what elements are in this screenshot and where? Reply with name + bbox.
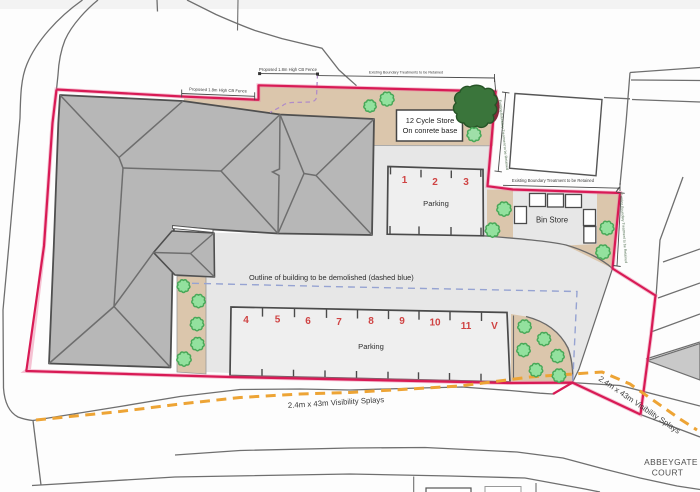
svg-text:7: 7 [336,317,342,328]
svg-text:6: 6 [305,316,311,327]
svg-text:COURT: COURT [652,468,684,478]
svg-text:5: 5 [275,315,281,326]
svg-text:ABBEYGATE: ABBEYGATE [644,457,698,467]
svg-text:10: 10 [429,318,441,329]
svg-text:12 Cycle Store: 12 Cycle Store [406,116,454,125]
svg-text:3: 3 [463,177,469,188]
svg-text:On conrete base: On conrete base [403,126,458,135]
svg-text:4: 4 [243,315,249,326]
svg-text:1: 1 [402,175,408,186]
svg-text:Parking: Parking [358,342,384,351]
svg-text:9: 9 [399,316,405,327]
svg-text:V: V [491,321,498,332]
svg-text:Bin Store: Bin Store [536,216,568,225]
svg-text:8: 8 [368,316,374,327]
svg-text:Proposed 1.8m High CB Fence: Proposed 1.8m High CB Fence [259,67,318,72]
svg-text:11: 11 [461,321,472,332]
svg-text:Existing Boundary Treatments t: Existing Boundary Treatments to be Retai… [369,71,443,75]
svg-text:Parking: Parking [423,199,449,208]
svg-text:2: 2 [432,177,438,188]
svg-text:Outline of building to be demo: Outline of building to be demolished (da… [249,273,414,282]
svg-text:Existing Boundary Treatment to: Existing Boundary Treatment to be Retain… [512,178,595,183]
